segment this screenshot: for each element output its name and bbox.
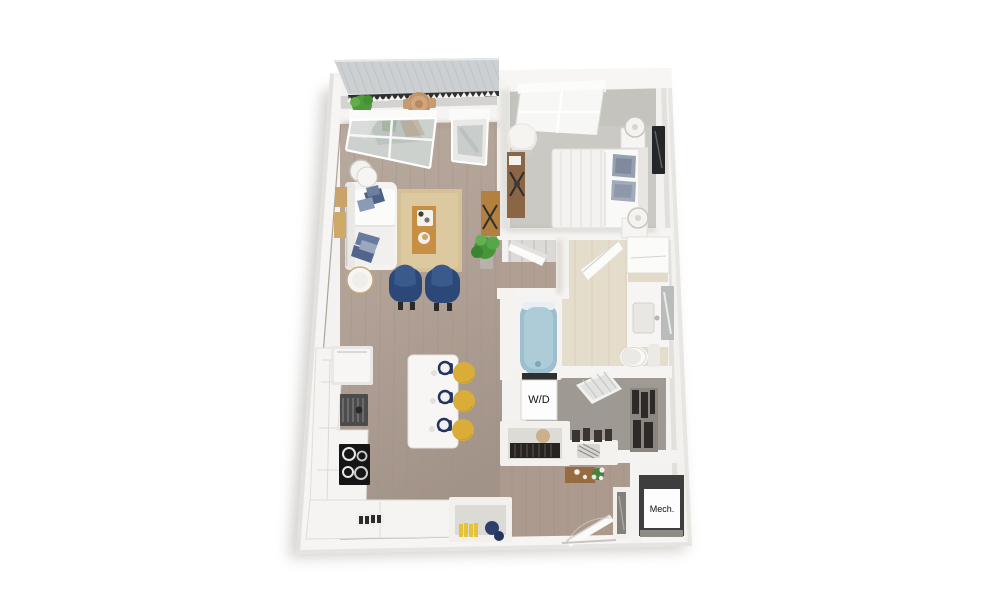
svg-text:Mech.: Mech. — [650, 504, 675, 514]
svg-text:W/D: W/D — [528, 394, 549, 406]
